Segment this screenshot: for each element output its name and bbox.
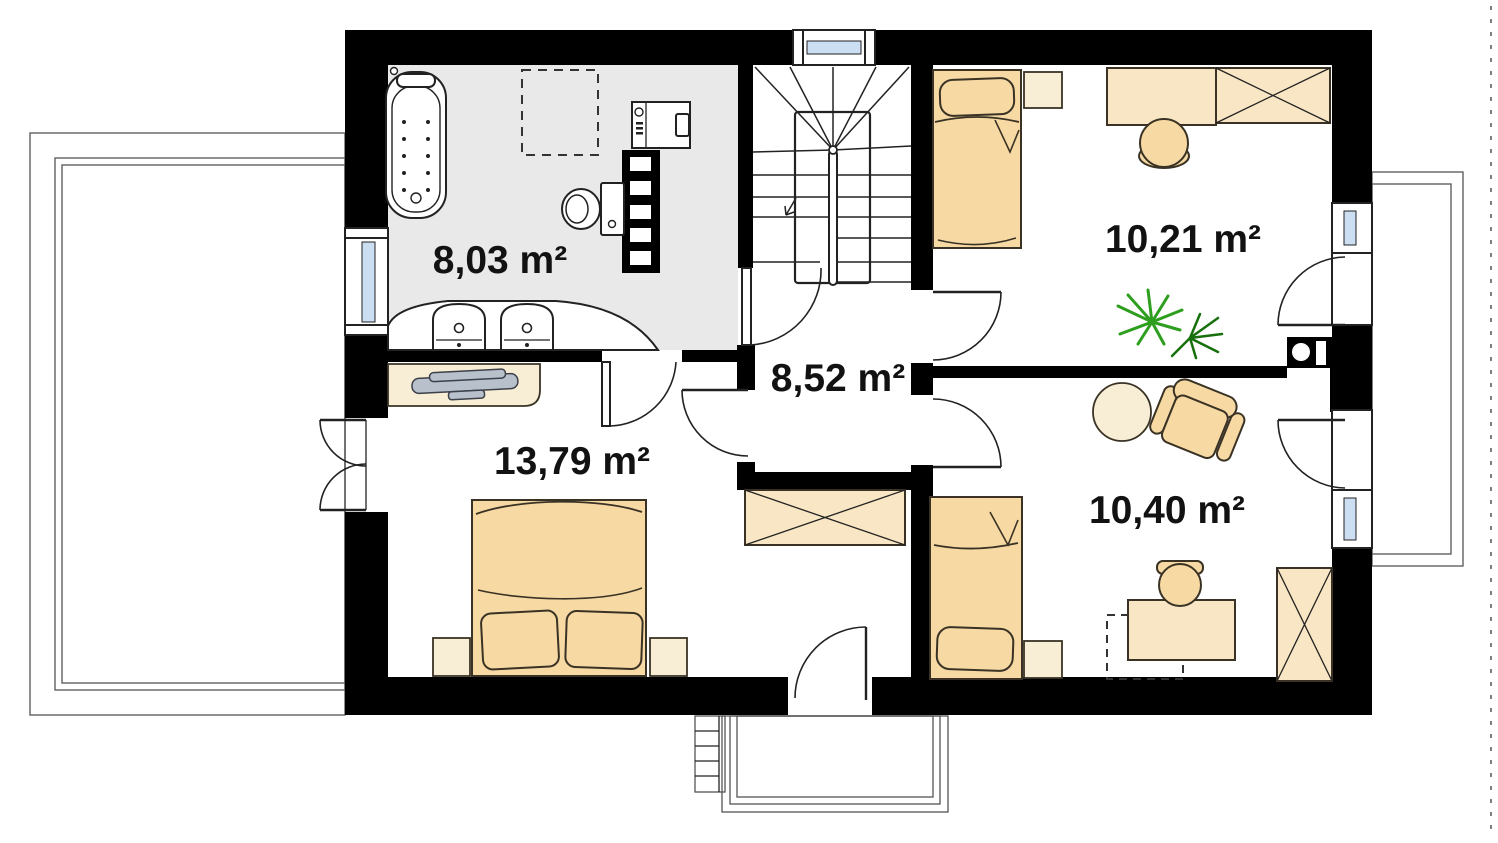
terrace-french-door — [320, 420, 366, 510]
towel-radiator-icon — [622, 150, 660, 273]
bathroom-window — [345, 228, 388, 335]
desk-top-right — [1107, 68, 1216, 125]
bathroom-door — [742, 268, 821, 345]
washbasin-left-icon — [433, 304, 485, 350]
armchair — [1147, 373, 1251, 466]
bottom-terrace — [722, 716, 948, 812]
balcony-door-bottom — [1278, 410, 1372, 548]
bedroom-left-hall-door — [682, 390, 748, 456]
bedroom-left-bath-door — [602, 362, 676, 426]
bathtub-icon — [386, 68, 446, 219]
dresser — [388, 364, 540, 406]
washbasin-right-icon — [501, 304, 553, 350]
entry-terrace-door — [789, 627, 871, 715]
bedroom-top-right-area-label: 10,21 m² — [1105, 218, 1261, 261]
bedroom-left-area-label: 13,79 m² — [494, 440, 650, 483]
washing-machine-icon — [632, 102, 690, 148]
hall-wardrobe — [745, 490, 905, 545]
wardrobe-top-right — [1216, 68, 1330, 123]
floor-plan: 8,03 m² 10,21 m² 8,52 m² 13,79 m² 10,40 … — [0, 0, 1498, 843]
single-bed-top — [933, 70, 1021, 248]
desk-bottom-right — [1128, 600, 1235, 660]
nightstand-left — [433, 638, 470, 676]
bedroom-bottom-right-area-label: 10,40 m² — [1089, 489, 1245, 532]
stair-window — [793, 30, 875, 65]
stool-icon — [1139, 119, 1189, 168]
bathroom-area-label: 8,03 m² — [433, 239, 567, 282]
single-bed-bottom — [930, 497, 1022, 679]
double-bed — [472, 500, 646, 676]
bedroom-top-right-door — [933, 292, 1001, 360]
wardrobe-bottom-right — [1277, 568, 1332, 681]
left-terrace — [30, 133, 345, 715]
staircase — [753, 67, 911, 285]
round-table — [1093, 383, 1151, 441]
nightstand-top-right — [1024, 72, 1062, 108]
floor-plan-drawing: 8,03 m² 10,21 m² 8,52 m² 13,79 m² 10,40 … — [0, 0, 1498, 843]
balcony-door-top — [1278, 203, 1372, 325]
nightstand-bottom-right — [1024, 641, 1062, 678]
exterior-steps — [695, 716, 725, 792]
bedroom-bottom-right-door — [933, 399, 1001, 467]
chimney — [1287, 337, 1372, 412]
desk-chair-icon — [1157, 561, 1203, 606]
plant-icon — [1118, 290, 1222, 358]
hall-area-label: 8,52 m² — [771, 357, 905, 400]
nightstand-right — [650, 638, 687, 676]
right-balcony — [1372, 172, 1463, 566]
